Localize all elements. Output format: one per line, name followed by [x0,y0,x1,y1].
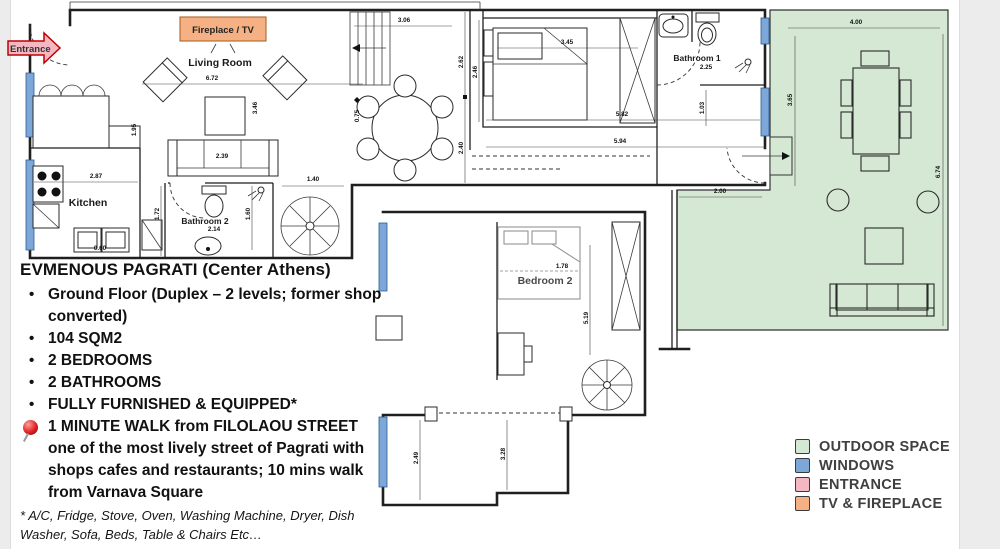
dim-bath1-width: 2.25 [700,64,713,71]
entrance-label: Entrance [10,44,51,55]
fireplace-tv-label: Fireplace / TV [192,25,254,36]
living-room-label: Living Room [188,57,252,69]
window [761,88,769,136]
dining-table [357,75,453,181]
dim-bath1-door: 1.03 [699,101,706,114]
entrance-swatch [795,477,810,492]
armchair [263,56,307,100]
dim-bed2-width: 1.78 [556,263,569,270]
dim-low-mid: 3.28 [500,447,507,460]
legend-item-tvfire: TV & FIREPLACE [795,494,950,513]
highlight-text: 1 MINUTE WALK from FILOLAOU STREET one o… [48,418,364,501]
tvfire-swatch [795,496,810,511]
dim-bath2-depth: 1.72 [154,207,161,220]
legend-item-windows: WINDOWS [795,456,950,475]
dim-bed1-depth: 2.46 [472,65,479,78]
footnote: * A/C, Fridge, Stove, Oven, Washing Mach… [20,506,382,544]
kitchen-label: Kitchen [69,197,108,209]
legend-label: OUTDOOR SPACE [819,439,950,455]
dim-outdoor-left: 3.65 [787,93,794,106]
dim-kitchen-width: 2.87 [90,173,103,180]
dim-bed2-depth: 5.19 [583,311,590,324]
dim-kitchen-wall: 1.95 [131,123,138,136]
list-item: FULLY FURNISHED & EQUIPPED* [20,394,382,416]
windows-swatch [795,458,810,473]
toilet-bowl [205,195,223,217]
bathroom1: Bathroom 1 [657,10,769,185]
bathroom2-label: Bathroom 2 [181,216,229,226]
dim-outdoor-right: 6.74 [935,165,942,178]
dim-living-width: 6.72 [206,75,219,82]
fireplace-tv-marker: Fireplace / TV [180,17,266,53]
legend-label: ENTRANCE [819,477,902,493]
dim-upper-total: 5.94 [614,138,627,145]
map-pin-icon [23,420,38,435]
dim-outdoor-gap: 2.00 [714,188,727,195]
toilet [202,186,226,194]
wardrobe [620,18,655,123]
legend-item-entrance: ENTRANCE [795,475,950,494]
dim-bed1-lower: 5.82 [616,111,629,118]
bedroom2: Bedroom 2 1.78 5.19 [498,222,640,410]
dim-dining-top: 3.06 [398,17,411,24]
spiral-staircase [582,360,632,410]
window [761,18,769,44]
dim-stair-width: 1.40 [307,176,320,183]
list-item: 104 SQM2 [20,328,382,350]
dishwasher [33,204,59,228]
list-item: 2 BATHROOMS [20,372,382,394]
sink [659,14,688,37]
highlight-item: 1 MINUTE WALK from FILOLAOU STREET one o… [20,416,382,504]
desk [498,333,532,375]
shower-icon [735,59,751,73]
legend: OUTDOOR SPACE WINDOWS ENTRANCE TV & FIRE… [795,437,950,513]
dim-hall-lower: 2.40 [458,141,465,154]
sink [195,237,221,255]
shower-icon [248,187,264,201]
list-item: 2 BEDROOMS [20,350,382,372]
upper-floor-plan: Entrance Fireplace / TV Living Room [8,2,769,258]
legend-item-outdoor: OUTDOOR SPACE [795,437,950,456]
armchair [143,58,187,102]
bedroom1: Bedroom 1 [483,10,657,127]
dim-bath2-width: 2.14 [208,226,221,233]
lower-floor-plan: Bedroom 2 1.78 5.19 [376,212,645,505]
outdoor-swatch [795,439,810,454]
feature-list: Ground Floor (Duplex – 2 levels; former … [20,284,382,504]
page-title: EVMENOUS PAGRATI (Center Athens) [20,260,382,280]
dim-bed1-width: 3.45 [561,39,574,46]
bedroom2-label: Bedroom 2 [518,275,573,287]
bathroom1-label: Bathroom 1 [673,53,721,63]
coffee-table [205,97,245,135]
kitchen-appliance [142,220,162,250]
spiral-staircase [281,197,339,255]
stairs [350,12,390,85]
floor-plan-page: 4.00 3.65 6.74 2.00 [0,0,1000,549]
dim-hall-upper: 2.62 [458,55,465,68]
list-item: Ground Floor (Duplex – 2 levels; former … [20,284,382,328]
dim-sofa: 2.39 [216,153,229,160]
toilet [696,13,719,45]
wardrobe [612,222,640,330]
dim-outdoor-top: 4.00 [850,19,863,26]
dim-dining-marker: 0.75 [354,109,361,122]
dim-bath2-right: 1.60 [245,207,252,220]
dim-appliance: 0.60 [94,245,107,252]
dim-low-left: 2.49 [413,451,420,464]
property-description: EVMENOUS PAGRATI (Center Athens) Ground … [20,260,382,544]
legend-label: TV & FIREPLACE [819,496,942,512]
legend-label: WINDOWS [819,458,894,474]
kitchen-counter [33,85,140,148]
stove [33,166,63,202]
entrance-marker: Entrance [8,33,60,63]
dim-living-depth: 3.46 [252,101,259,114]
